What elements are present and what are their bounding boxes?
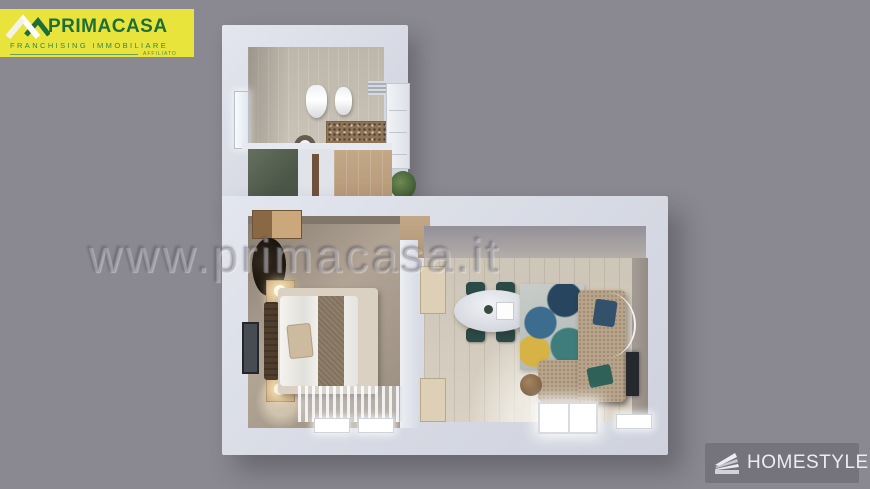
primacasa-rule bbox=[10, 54, 138, 55]
bed-headboard bbox=[264, 302, 279, 380]
primacasa-name: PRIMACASA bbox=[48, 16, 168, 38]
pouf bbox=[520, 374, 542, 396]
terrace-door-window bbox=[538, 402, 598, 434]
homestyler-label: HOMESTYLER bbox=[747, 443, 870, 483]
wall-picture bbox=[242, 322, 259, 374]
toilet bbox=[306, 85, 327, 118]
watermark: www.primacasa.it bbox=[88, 228, 688, 283]
bedroom-window bbox=[314, 418, 350, 433]
shower-area bbox=[248, 149, 300, 201]
bed-cushion bbox=[286, 323, 313, 359]
homestyler-badge: HOMESTYLER bbox=[705, 443, 859, 483]
floorplan-render: www.primacasa.it PRIMACASA FRANCHISING I… bbox=[0, 0, 870, 489]
bed-runner bbox=[318, 296, 344, 386]
homestyler-fanned-pages-icon bbox=[713, 451, 741, 475]
area-rug bbox=[520, 284, 584, 370]
primacasa-tagline: FRANCHISING IMMOBILIARE bbox=[10, 41, 168, 50]
double-bed bbox=[278, 288, 378, 394]
plant bbox=[390, 171, 416, 199]
bedroom-curtains bbox=[298, 386, 402, 422]
table-centerpiece bbox=[484, 305, 493, 314]
table-placemat bbox=[496, 302, 514, 320]
storage-cabinet bbox=[420, 378, 446, 422]
bathroom-block-walls bbox=[222, 25, 408, 211]
bathroom-window bbox=[234, 91, 249, 149]
living-window bbox=[616, 414, 652, 429]
bedroom-window bbox=[358, 418, 394, 433]
bathroom-floor bbox=[248, 47, 384, 147]
primacasa-affiliate-label: AFFILIATO bbox=[143, 51, 177, 57]
bidet bbox=[335, 87, 352, 115]
wall-tv bbox=[626, 352, 639, 396]
primacasa-logo: PRIMACASA FRANCHISING IMMOBILIARE AFFILI… bbox=[0, 9, 194, 57]
